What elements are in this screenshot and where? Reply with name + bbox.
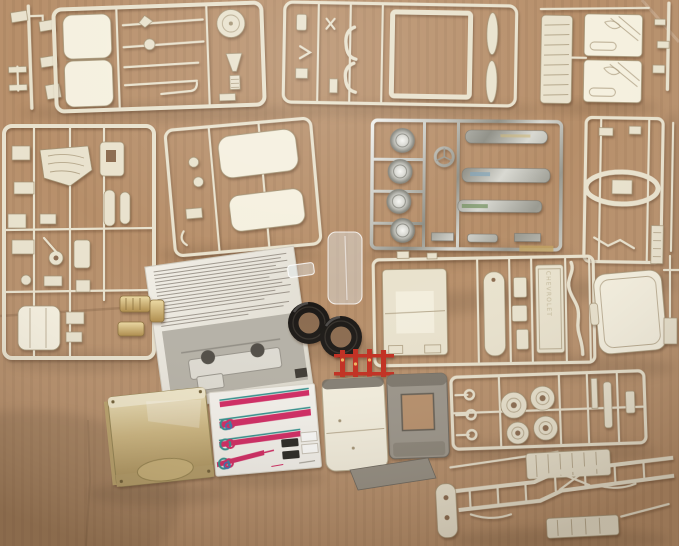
photo-model-kit-layout: CHEVROLET (0, 0, 679, 546)
lighting-overlay (0, 0, 679, 546)
scene-canvas: CHEVROLET (0, 0, 679, 546)
